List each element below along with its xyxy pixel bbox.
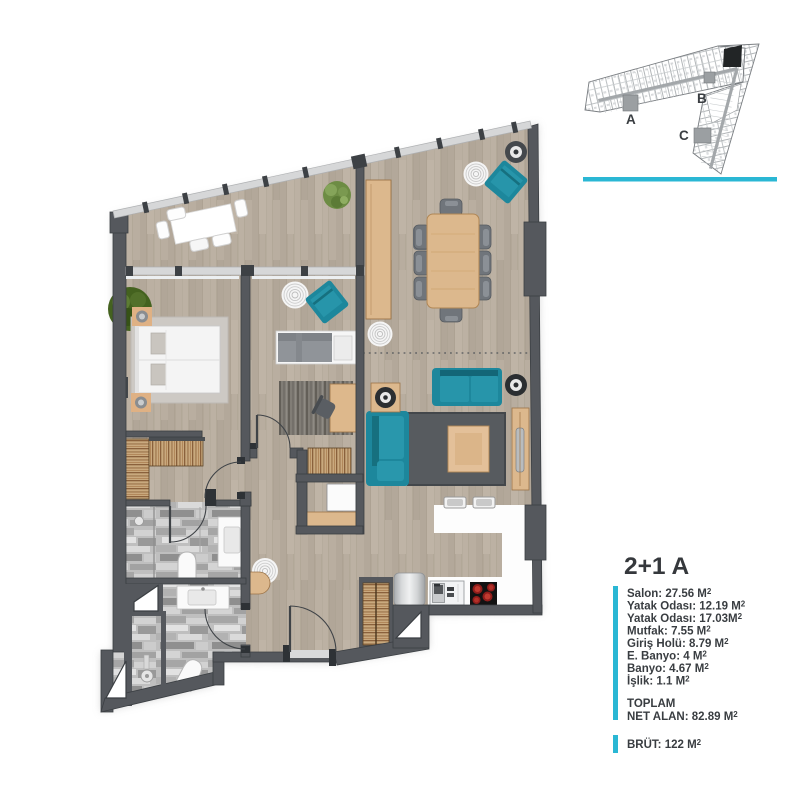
svg-text:A: A [626, 112, 636, 127]
svg-text:C: C [679, 128, 689, 143]
svg-text:İşlik: 1.1 M2: İşlik: 1.1 M2 [627, 675, 690, 688]
svg-text:BRÜT: 122 M2: BRÜT: 122 M2 [627, 738, 702, 751]
svg-text:Mutfak: 7.55 M2: Mutfak: 7.55 M2 [627, 625, 711, 638]
svg-text:Salon: 27.56 M2: Salon: 27.56 M2 [627, 587, 712, 600]
svg-text:E. Banyo: 4 M2: E. Banyo: 4 M2 [627, 650, 707, 663]
svg-text:Yatak Odası: 12.19 M2: Yatak Odası: 12.19 M2 [627, 600, 746, 613]
svg-text:Yatak Odası: 17.03M2: Yatak Odası: 17.03M2 [627, 612, 743, 625]
svg-text:B: B [697, 91, 707, 106]
svg-text:NET ALAN: 82.89 M2: NET ALAN: 82.89 M2 [627, 710, 738, 723]
svg-text:TOPLAM: TOPLAM [627, 698, 675, 710]
svg-text:Banyo: 4.67 M2: Banyo: 4.67 M2 [627, 662, 709, 675]
svg-text:Giriş Holü: 8.79 M2: Giriş Holü: 8.79 M2 [627, 637, 729, 650]
svg-text:2+1 A: 2+1 A [624, 553, 689, 580]
